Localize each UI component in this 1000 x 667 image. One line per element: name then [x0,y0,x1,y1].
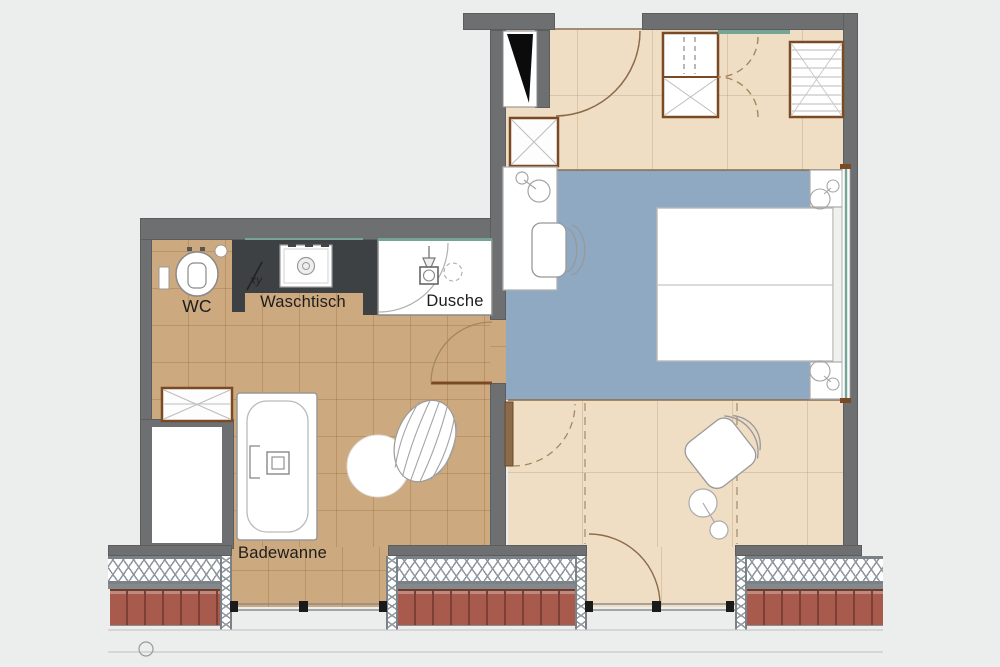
entrance-door [503,31,537,107]
window-balcony-door [585,601,735,612]
label-dusche: Dusche [420,292,490,310]
section-marker: xy [247,262,263,290]
entrance-door-swing [556,31,640,116]
ground-marker-circle [139,642,153,656]
luggage-rack [790,42,843,117]
bathroom-door-swing [431,322,492,383]
balcony-door-swing [589,534,660,605]
dressing-door-swing [513,404,575,466]
floor-plan-canvas: xy [0,0,1000,667]
label-badewanne: Badewanne [238,544,358,562]
wardrobe [663,33,718,117]
label-waschtisch: Waschtisch [243,293,363,311]
fixtures-layer: xy [0,0,1000,667]
floor-lamp [689,489,728,539]
toilet [176,247,218,296]
wardrobe-teal-strip [718,30,790,34]
sink [280,243,332,287]
wc-accessory [215,245,227,257]
cabinet-x-bathroom [162,388,232,421]
nightstand-bottom [810,361,843,399]
tub-faucet [267,452,289,474]
svg-text:xy: xy [249,273,263,287]
bed [657,202,844,366]
dressing-door [505,402,513,466]
armchair [680,405,771,493]
nightstand-top [810,170,843,209]
desk-chair [532,223,585,277]
minibar-cabinet [510,118,558,166]
window-bathroom [230,601,388,612]
wardrobe-fold-door-swing [718,37,758,117]
label-wc: WC [170,297,224,315]
toilet-paper-holder [159,267,169,289]
bathtub [237,393,317,540]
bathroom-door [431,322,492,383]
window-right [840,164,851,403]
